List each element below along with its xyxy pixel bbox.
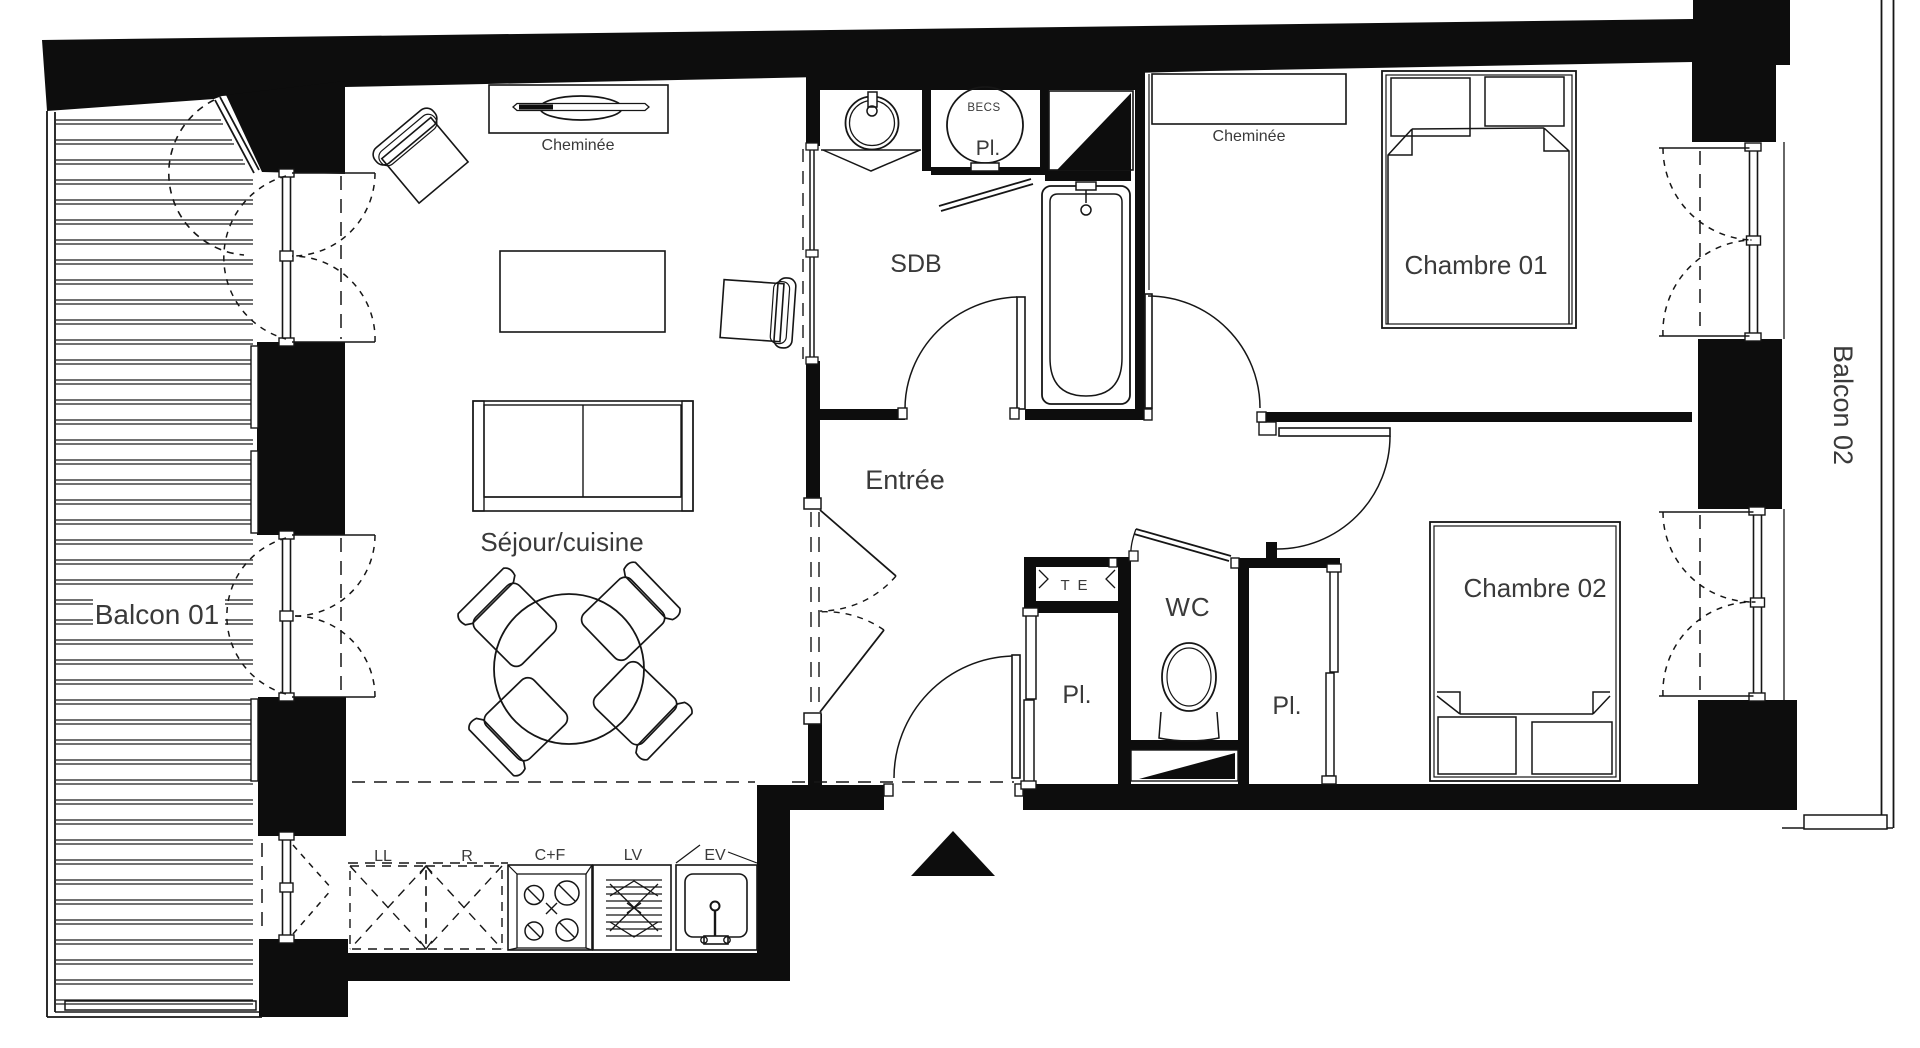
svg-text:T E: T E: [1060, 577, 1089, 594]
svg-text:Séjour/cuisine: Séjour/cuisine: [480, 527, 643, 557]
svg-text:EV: EV: [704, 847, 726, 864]
svg-text:Entrée: Entrée: [865, 465, 945, 495]
svg-text:Chambre 01: Chambre 01: [1404, 250, 1547, 280]
svg-text:Cheminée: Cheminée: [1213, 128, 1286, 145]
svg-text:Cheminée: Cheminée: [542, 137, 615, 154]
svg-text:LL: LL: [374, 848, 392, 865]
svg-text:SDB: SDB: [890, 250, 941, 278]
svg-text:Pl.: Pl.: [1062, 681, 1091, 709]
svg-text:Balcon 01: Balcon 01: [95, 599, 220, 630]
svg-text:Pl.: Pl.: [1272, 692, 1301, 720]
svg-text:WC: WC: [1165, 592, 1210, 622]
svg-text:Balcon 02: Balcon 02: [1828, 345, 1858, 465]
svg-text:LV: LV: [624, 847, 643, 864]
svg-text:BECS: BECS: [967, 102, 1000, 114]
svg-text:C+F: C+F: [535, 847, 566, 864]
svg-text:Pl.: Pl.: [976, 137, 1001, 160]
svg-text:Chambre 02: Chambre 02: [1463, 573, 1606, 603]
svg-text:R: R: [461, 848, 473, 865]
